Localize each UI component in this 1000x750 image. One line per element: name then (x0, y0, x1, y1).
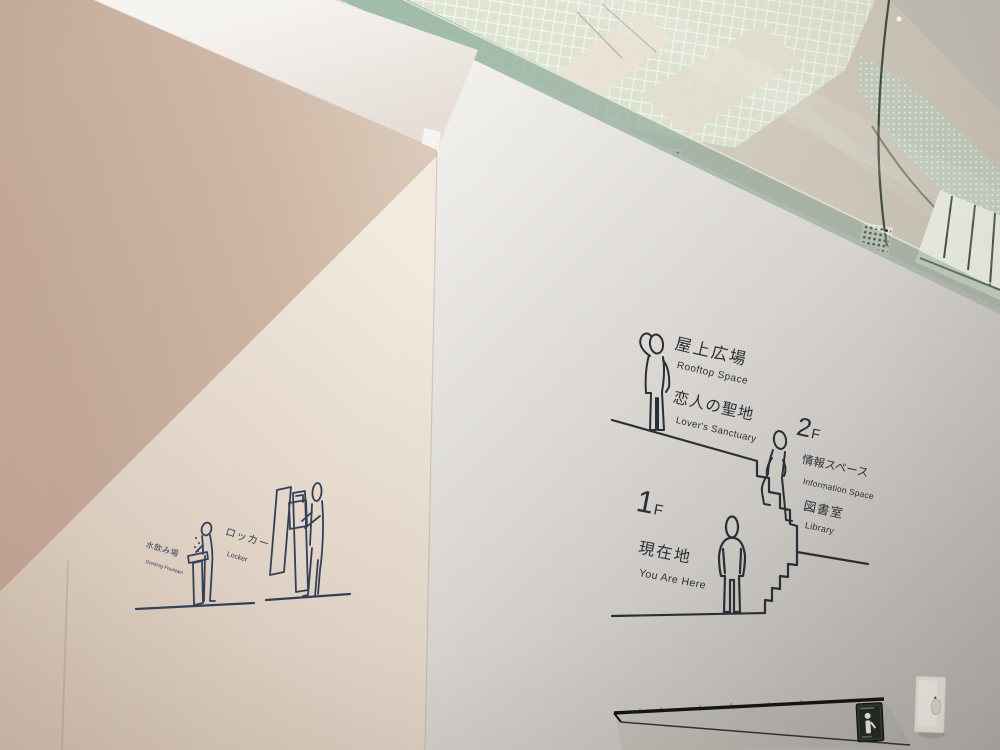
floor1-label: 1F (634, 485, 667, 521)
scene-graphics (0, 0, 1000, 750)
lobby-wayfinding-photo: 屋上広場 Rooftop Space 恋人の聖地 Lover's Sanctua… (0, 0, 1000, 750)
ceiling-light (896, 16, 901, 21)
information-sign-icon (856, 703, 884, 742)
light-switch (914, 676, 946, 739)
